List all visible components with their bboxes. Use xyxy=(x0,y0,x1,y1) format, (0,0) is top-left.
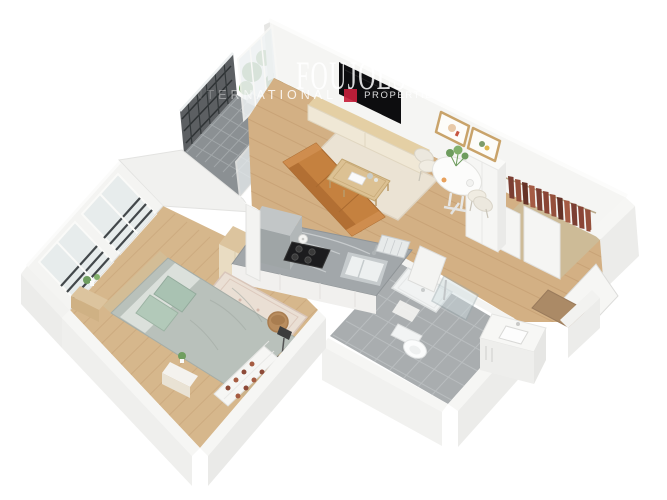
floorplan-render xyxy=(0,0,667,500)
faucet xyxy=(516,322,520,326)
fruit xyxy=(442,178,447,183)
plant xyxy=(94,274,100,280)
vase xyxy=(367,173,373,179)
floorplan-screenshot: FOUJOLS INTERNATIONAL PROPERTIES xyxy=(0,0,667,500)
kettle xyxy=(299,235,308,244)
bowl xyxy=(467,180,474,187)
plant xyxy=(178,352,186,360)
plant xyxy=(83,276,91,284)
